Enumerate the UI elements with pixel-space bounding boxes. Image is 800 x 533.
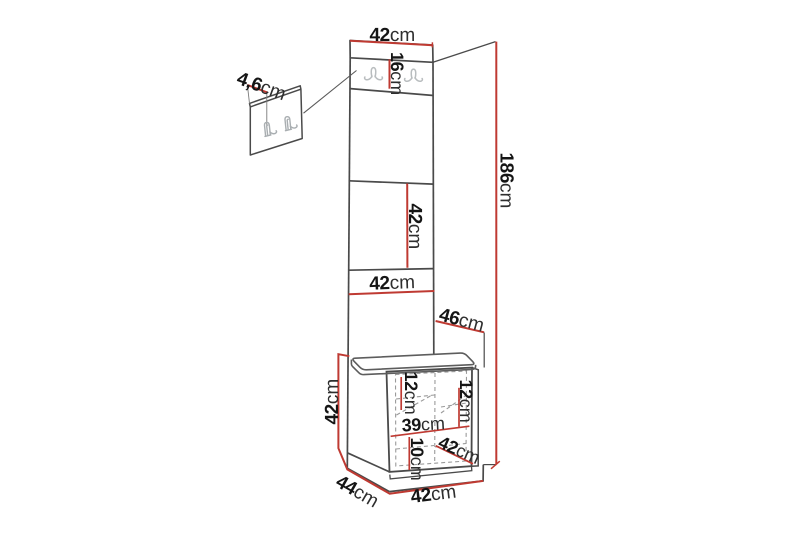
svg-text:42cm: 42cm [404,204,425,250]
svg-text:42cm: 42cm [370,25,416,46]
svg-text:42cm: 42cm [369,272,415,295]
svg-text:39cm: 39cm [401,413,445,435]
svg-text:12cm: 12cm [456,380,476,423]
svg-text:186cm: 186cm [496,153,517,209]
svg-text:16cm: 16cm [387,52,407,95]
svg-text:10cm: 10cm [407,438,427,481]
svg-text:12cm: 12cm [401,372,421,415]
svg-text:42cm: 42cm [322,379,343,425]
